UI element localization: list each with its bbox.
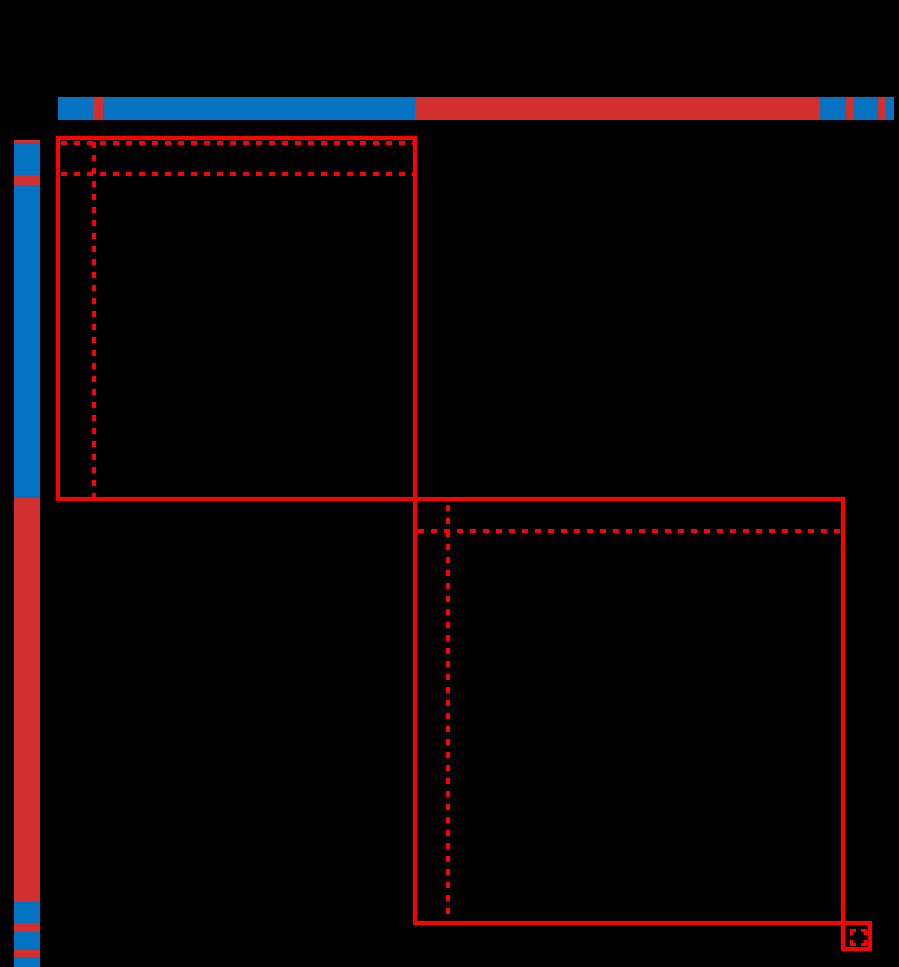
cluster-1-top-subline: [61, 141, 413, 145]
cluster-1-row-subline: [61, 172, 413, 176]
bicluster-matrix-figure: [0, 0, 899, 967]
cluster-3-inner-dashed-box: [850, 929, 867, 946]
cluster-2-col-subline: [446, 505, 450, 920]
cluster-1-col-subline: [92, 142, 96, 497]
dashed-sublines-layer: [0, 0, 899, 967]
cluster-2-row-subline: [418, 529, 841, 533]
